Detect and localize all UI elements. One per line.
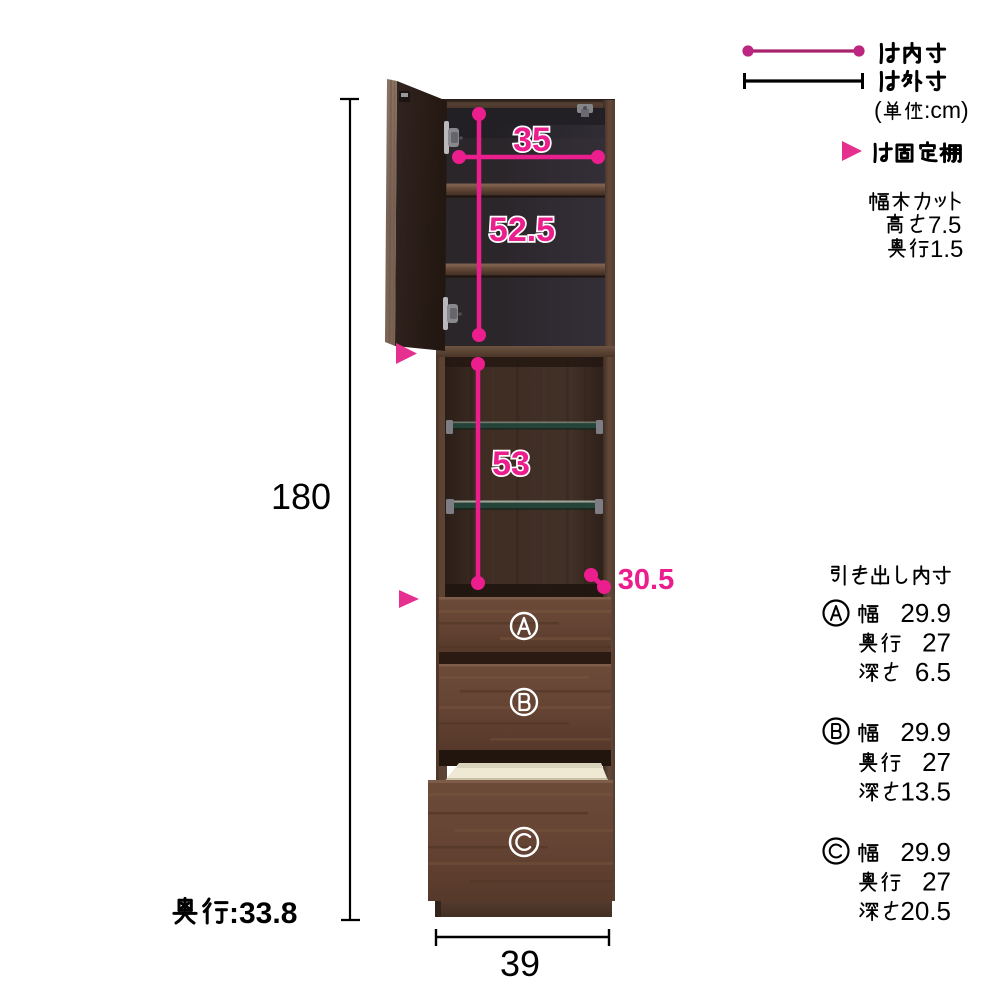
svg-text:39: 39 [500,943,540,984]
svg-text:29.9: 29.9 [900,717,951,747]
svg-text:27: 27 [922,747,951,777]
svg-text:35: 35 [513,121,551,159]
svg-text:52.5: 52.5 [489,211,555,249]
svg-text:(: ( [874,97,882,123]
svg-text:27: 27 [922,867,951,897]
svg-text:1.5: 1.5 [930,236,963,263]
svg-text:7.5: 7.5 [928,212,961,239]
svg-text:6.5: 6.5 [915,657,951,687]
svg-text:27: 27 [922,628,951,658]
svg-text:53: 53 [492,445,530,483]
svg-text:29.9: 29.9 [900,598,951,628]
svg-text:180: 180 [271,476,331,517]
svg-text::cm): :cm) [924,97,969,123]
svg-text:20.5: 20.5 [900,896,951,926]
svg-text:13.5: 13.5 [900,777,951,807]
svg-text:29.9: 29.9 [900,837,951,867]
svg-text:30.5: 30.5 [618,564,674,596]
svg-text::33.8: :33.8 [229,897,297,930]
